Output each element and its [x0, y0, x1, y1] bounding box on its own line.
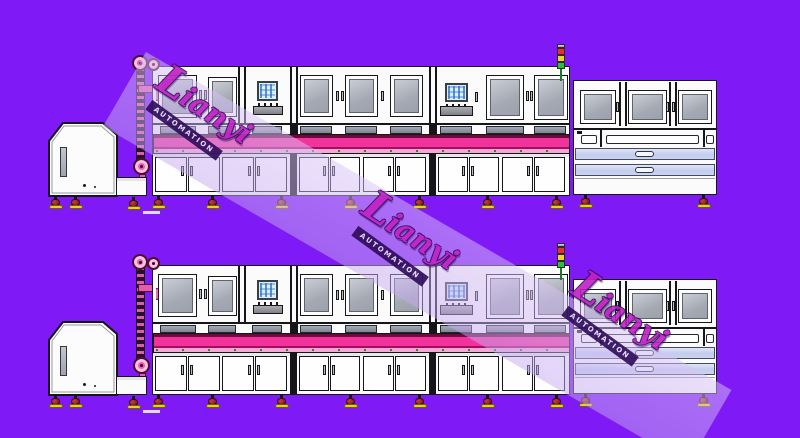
frame-divider [238, 266, 240, 322]
caster-foot [550, 395, 564, 408]
frame-divider [296, 266, 298, 322]
hmi-screen [257, 280, 278, 300]
door-handle [336, 290, 339, 300]
window-glass [349, 278, 374, 312]
frame-divider [290, 266, 292, 322]
caster-foot [206, 395, 220, 408]
door-handle [341, 91, 344, 101]
door-handle [530, 91, 533, 101]
window-glass [349, 79, 374, 113]
machine-window [580, 90, 616, 124]
window-glass [162, 278, 193, 313]
window-glass [682, 94, 708, 120]
leveling-pad [275, 404, 289, 408]
signal-yellow-lamp [557, 254, 565, 261]
door-handle [471, 166, 474, 176]
machine-window [390, 75, 423, 117]
leveling-pad [206, 404, 220, 408]
hmi-screen [257, 81, 278, 101]
leveling-pad [550, 404, 564, 408]
drawer-handle [635, 151, 654, 157]
caster-foot [49, 395, 63, 408]
window-glass [632, 94, 663, 120]
door-handle [388, 365, 391, 375]
machine-window [300, 274, 333, 316]
station-bottom-line [575, 178, 715, 179]
elevator-pulley-top [132, 254, 148, 270]
window-glass [304, 278, 329, 312]
window-glass [212, 280, 233, 312]
caster-foot [152, 395, 166, 408]
caster-foot [413, 395, 427, 408]
hopper-side-slot [60, 346, 67, 376]
elevator-pulley-bottom [133, 158, 150, 175]
frame-divider [435, 67, 437, 123]
lower-window [300, 325, 332, 333]
hopper-detail-dot [83, 184, 86, 187]
window-glass [538, 79, 564, 116]
drawer-handle [635, 167, 654, 173]
frame-divider [244, 266, 246, 322]
lower-window [534, 126, 566, 134]
leveling-pad [152, 404, 166, 408]
door-handle [397, 365, 400, 375]
hmi-screen [445, 83, 468, 102]
signal-yellow-lamp [557, 55, 565, 62]
leveling-pad [127, 405, 141, 409]
window-glass [490, 79, 520, 116]
hopper-detail-dot [83, 383, 86, 386]
keyboard-tray [253, 305, 283, 314]
door-handle [536, 166, 539, 176]
frame-divider [619, 82, 621, 126]
caster-foot [481, 395, 495, 408]
frame-divider [625, 82, 627, 126]
lower-window [300, 126, 332, 134]
machine-window [345, 75, 378, 117]
elevator-pulley-top-right [147, 257, 160, 270]
door-handle [462, 166, 465, 176]
door-handle [381, 91, 384, 101]
lower-window [208, 325, 236, 333]
window-glass [682, 293, 708, 319]
door-handle [190, 365, 193, 375]
machine-window [678, 90, 712, 124]
machine-window [300, 75, 333, 117]
door-handle [397, 166, 400, 176]
frame-divider [429, 67, 431, 123]
signal-green-lamp [557, 261, 565, 268]
signal-green-lamp [557, 62, 565, 69]
leveling-pad [69, 404, 83, 408]
tool-slot [606, 135, 699, 144]
door-handle [471, 365, 474, 375]
door-handle [323, 365, 326, 375]
infeed-table [116, 177, 147, 196]
door-handle [475, 92, 478, 102]
window-glass [304, 79, 329, 113]
caster-foot [275, 395, 289, 408]
caster-foot [69, 395, 83, 408]
frame-divider [675, 281, 677, 325]
machine-window [628, 90, 667, 124]
module-divider [290, 124, 298, 135]
hopper-detail-dot [94, 385, 96, 387]
door-handle [616, 102, 619, 112]
lower-window [390, 126, 422, 134]
module-divider [429, 124, 437, 135]
lower-window [440, 126, 472, 134]
door-handle [199, 289, 202, 299]
machine-window [158, 274, 197, 317]
cad-drawing-canvas: Lianyi AUTOMATION Lianyi AUTOMATION Lian… [0, 0, 800, 438]
door-handle [257, 365, 260, 375]
door-handle [332, 365, 335, 375]
signal-tower [555, 44, 567, 81]
door-handle [181, 365, 184, 375]
lower-window [345, 325, 377, 333]
frame-divider [703, 329, 705, 346]
signal-red-lamp [557, 247, 565, 254]
module-divider [429, 353, 436, 394]
station-rail [574, 128, 716, 130]
caster-foot [127, 396, 141, 409]
scale-marker [143, 410, 160, 413]
hopper-side-slot [60, 147, 67, 177]
leveling-pad [49, 404, 63, 408]
machine-window [208, 276, 237, 316]
frame-divider [703, 130, 705, 147]
frame-divider [569, 135, 571, 153]
frame-divider [600, 130, 602, 147]
lower-window [390, 325, 422, 333]
door-handle [666, 301, 669, 311]
door-handle [336, 91, 339, 101]
lower-window [160, 325, 196, 333]
frame-divider [290, 67, 292, 123]
signal-red-lamp [557, 48, 565, 55]
signal-pole [560, 268, 562, 280]
frame-divider [675, 82, 677, 126]
infeed-table [116, 376, 147, 395]
lower-window [486, 126, 524, 134]
tool-slot [581, 135, 597, 144]
keyboard-tray [440, 106, 473, 116]
module-divider [429, 323, 437, 334]
door-handle [527, 166, 530, 176]
leveling-pad [344, 404, 358, 408]
caster-foot [344, 395, 358, 408]
signal-tower [555, 243, 567, 280]
door-handle [462, 365, 465, 375]
signal-pole [560, 69, 562, 81]
window-glass [394, 79, 419, 113]
door-handle [672, 102, 675, 112]
door-handle [204, 289, 207, 299]
machine-window [486, 75, 524, 120]
lower-window [252, 325, 282, 333]
door-handle [381, 290, 384, 300]
frame-divider [296, 67, 298, 123]
door-handle [248, 365, 251, 375]
lower-window [345, 126, 377, 134]
machine-window [534, 75, 568, 120]
elevator-pulley-bottom [133, 357, 150, 374]
frame-divider [669, 82, 671, 126]
module-divider [290, 323, 298, 334]
elevator-chain-column [136, 259, 145, 371]
door-handle [672, 301, 675, 311]
leveling-pad [413, 404, 427, 408]
tool-slot [706, 135, 714, 144]
window-glass [584, 94, 612, 120]
module-divider [290, 353, 297, 394]
module-divider [429, 154, 436, 195]
frame-divider [152, 334, 154, 352]
door-handle [526, 91, 529, 101]
door-handle [388, 166, 391, 176]
machine-window [678, 289, 712, 323]
tool-slot [706, 334, 714, 343]
door-handle [341, 290, 344, 300]
leveling-pad [481, 404, 495, 408]
station-mark [577, 131, 582, 134]
hopper-detail-dot [94, 186, 96, 188]
door-handle [666, 102, 669, 112]
